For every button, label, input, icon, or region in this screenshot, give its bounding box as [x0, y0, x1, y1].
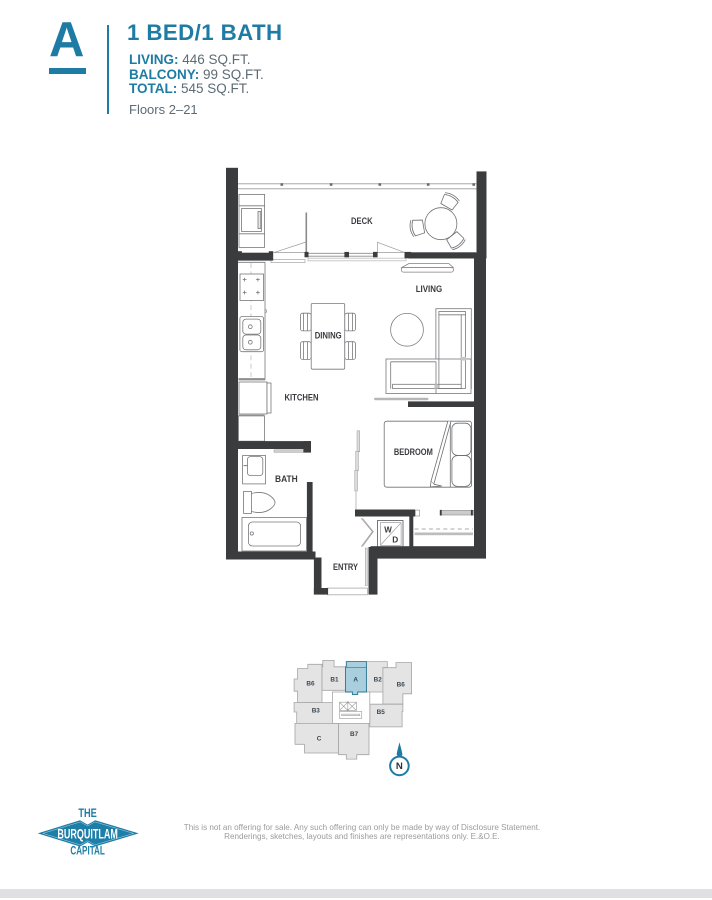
svg-text:DECK: DECK	[351, 216, 373, 226]
svg-text:DINING: DINING	[315, 330, 342, 340]
svg-text:THE: THE	[78, 808, 97, 820]
svg-text:D: D	[392, 535, 398, 545]
svg-text:BEDROOM: BEDROOM	[394, 447, 433, 457]
svg-text:B7: B7	[350, 731, 359, 738]
svg-text:BATH: BATH	[275, 474, 298, 484]
svg-text:B3: B3	[312, 708, 321, 715]
svg-text:B5: B5	[377, 709, 386, 716]
svg-text:N: N	[396, 761, 403, 772]
svg-text:C: C	[317, 736, 322, 743]
svg-text:W: W	[384, 524, 392, 534]
svg-text:ENTRY: ENTRY	[333, 562, 358, 572]
svg-text:B6: B6	[397, 682, 406, 689]
svg-text:A: A	[353, 676, 358, 683]
svg-text:KITCHEN: KITCHEN	[285, 392, 319, 402]
svg-text:LIVING: LIVING	[416, 284, 443, 294]
svg-text:B2: B2	[374, 676, 383, 683]
svg-text:B1: B1	[330, 676, 339, 683]
svg-text:B6: B6	[306, 681, 315, 688]
svg-text:CAPITAL: CAPITAL	[70, 846, 105, 858]
